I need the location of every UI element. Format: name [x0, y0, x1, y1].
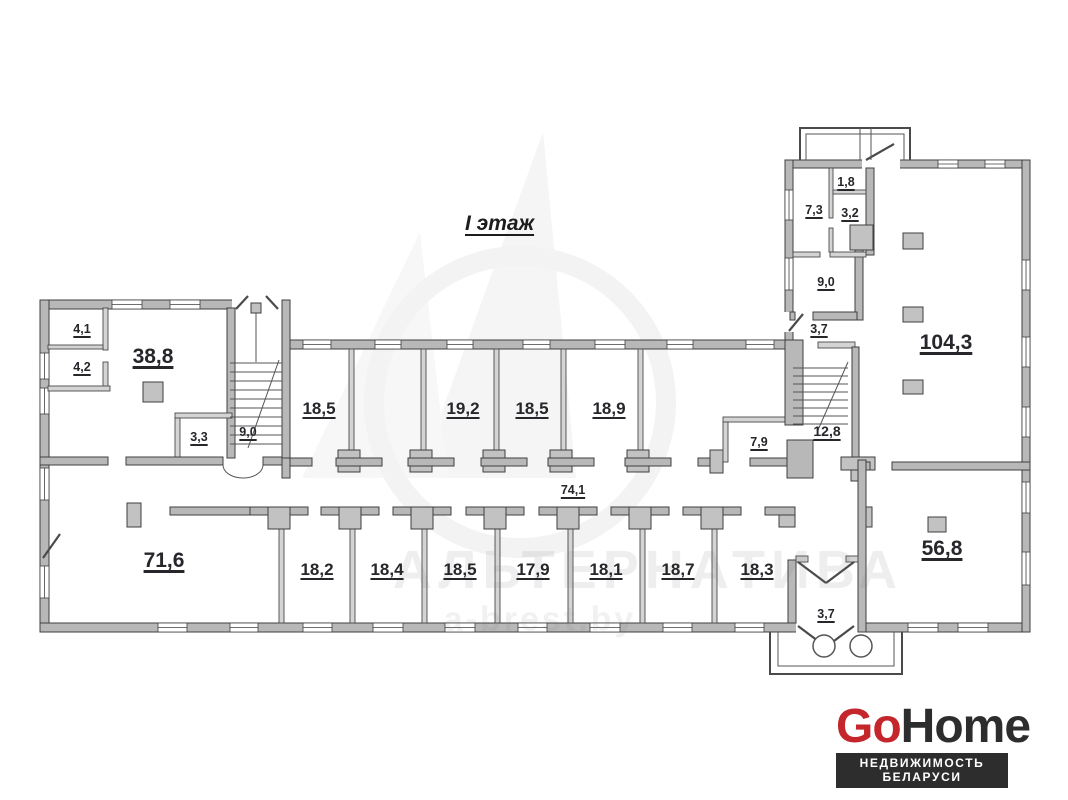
room-area-label-74-1: 74,1: [561, 483, 585, 497]
room-area-label-4-2: 4,2: [73, 360, 90, 374]
room-area-label-18-4: 18,4: [370, 560, 403, 580]
room-area-label-1-8: 1,8: [837, 175, 854, 189]
corridor-end-pier: [787, 440, 813, 478]
logo-go-text: Go: [836, 700, 901, 753]
room-area-label-7-9: 7,9: [750, 435, 767, 449]
room-area-label-4-1: 4,1: [73, 322, 90, 336]
room-area-label-56-8: 56,8: [922, 537, 963, 561]
gohome-logo: GoHome НЕДВИЖИМОСТЬ БЕЛАРУСИ: [836, 702, 1030, 788]
room-area-label-18-5-b: 18,5: [515, 399, 548, 419]
room-area-label-17-9: 17,9: [516, 560, 549, 580]
floor-plan-page: АЛЬТЕРНАТИВА a-brest.by I этаж 4,1 4,2 3…: [0, 0, 1068, 800]
room-area-label-19-2: 19,2: [446, 399, 479, 419]
room-area-label-9-0-r: 9,0: [817, 275, 834, 289]
gohome-tagline: НЕДВИЖИМОСТЬ БЕЛАРУСИ: [836, 753, 1008, 788]
room-area-label-18-1: 18,1: [589, 560, 622, 580]
room-area-label-3-3: 3,3: [190, 430, 207, 444]
room-area-label-18-7: 18,7: [661, 560, 694, 580]
room-area-label-18-3: 18,3: [740, 560, 773, 580]
room-area-label-18-5-a: 18,5: [302, 399, 335, 419]
gohome-wordmark: GoHome: [836, 702, 1030, 752]
room-area-label-18-9: 18,9: [592, 399, 625, 419]
room-area-label-38-8: 38,8: [133, 345, 174, 369]
watermark-url: a-brest.by: [444, 601, 637, 640]
room-area-label-3-2: 3,2: [841, 206, 858, 220]
room-area-label-3-7-e: 3,7: [817, 607, 834, 621]
room-area-label-18-5-c: 18,5: [443, 560, 476, 580]
central-pier: [785, 340, 803, 425]
floor-title: I этаж: [465, 212, 534, 236]
logo-home-text: Home: [901, 700, 1030, 753]
room-area-label-9-0-l: 9,0: [239, 425, 256, 439]
room-area-label-12-8: 12,8: [813, 423, 840, 439]
room-area-label-3-7-m: 3,7: [810, 322, 827, 336]
room-area-label-18-2: 18,2: [300, 560, 333, 580]
room-area-label-7-3: 7,3: [805, 203, 822, 217]
room-area-label-104-3: 104,3: [920, 331, 973, 355]
room-area-label-71-6: 71,6: [144, 549, 185, 573]
